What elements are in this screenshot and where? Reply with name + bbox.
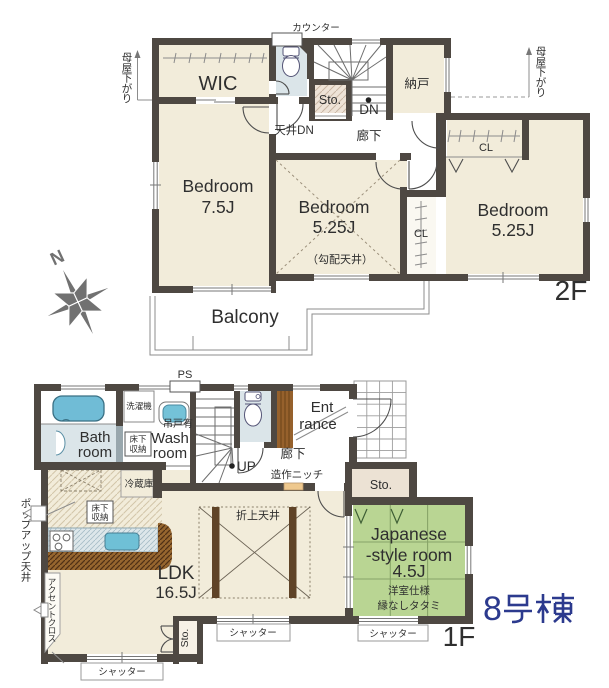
svg-text:5.25J: 5.25J	[492, 220, 535, 240]
svg-text:天井DN: 天井DN	[274, 123, 314, 137]
svg-text:Sto.: Sto.	[179, 629, 191, 648]
svg-text:DN: DN	[359, 102, 379, 117]
svg-text:Bedroom: Bedroom	[182, 176, 253, 196]
svg-text:縁なしタタミ: 縁なしタタミ	[378, 599, 441, 612]
svg-text:Japanese: Japanese	[371, 524, 447, 544]
svg-text:シャッター: シャッター	[229, 628, 277, 639]
svg-text:納戸: 納戸	[404, 77, 429, 91]
svg-text:り: り	[536, 87, 547, 99]
svg-text:rance: rance	[299, 416, 337, 433]
svg-text:LDK: LDK	[158, 563, 195, 584]
svg-text:PS: PS	[178, 369, 193, 381]
svg-text:シャッター: シャッター	[98, 667, 146, 678]
svg-text:収納: 収納	[129, 444, 146, 454]
svg-text:Bedroom: Bedroom	[477, 200, 548, 220]
svg-text:床下: 床下	[129, 434, 147, 444]
svg-text:2F: 2F	[555, 275, 588, 306]
svg-text:井: 井	[21, 571, 32, 584]
svg-text:Balcony: Balcony	[211, 307, 279, 328]
svg-text:造作ニッチ: 造作ニッチ	[271, 468, 324, 481]
svg-text:り: り	[122, 93, 133, 105]
svg-text:CL: CL	[414, 228, 428, 240]
svg-text:廊下: 廊下	[356, 128, 381, 143]
svg-text:Sto.: Sto.	[370, 478, 392, 492]
svg-text:吊戸有: 吊戸有	[163, 417, 193, 430]
svg-text:洋室仕様: 洋室仕様	[388, 584, 430, 597]
svg-text:16.5J: 16.5J	[155, 583, 197, 602]
svg-text:Ent: Ent	[311, 399, 334, 416]
svg-text:冷蔵庫: 冷蔵庫	[125, 478, 154, 490]
svg-text:折上天井: 折上天井	[236, 508, 280, 522]
svg-text:（勾配天井）: （勾配天井）	[307, 252, 373, 266]
svg-text:カウンター: カウンター	[292, 23, 340, 34]
svg-text:room: room	[153, 445, 187, 462]
svg-text:7.5J: 7.5J	[201, 197, 234, 217]
svg-text:CL: CL	[479, 142, 493, 154]
svg-text:8: 8	[483, 590, 502, 628]
svg-text:WIC: WIC	[199, 73, 238, 95]
svg-text:room: room	[78, 444, 112, 461]
svg-text:洗濯機: 洗濯機	[126, 401, 152, 411]
svg-text:ス: ス	[48, 634, 57, 644]
svg-text:Sto.: Sto.	[319, 93, 341, 107]
svg-text:廊下: 廊下	[280, 446, 305, 461]
svg-text:4.5J: 4.5J	[392, 561, 425, 581]
svg-text:シャッター: シャッター	[369, 629, 417, 640]
svg-text:収納: 収納	[91, 512, 108, 522]
svg-text:1F: 1F	[443, 621, 476, 652]
